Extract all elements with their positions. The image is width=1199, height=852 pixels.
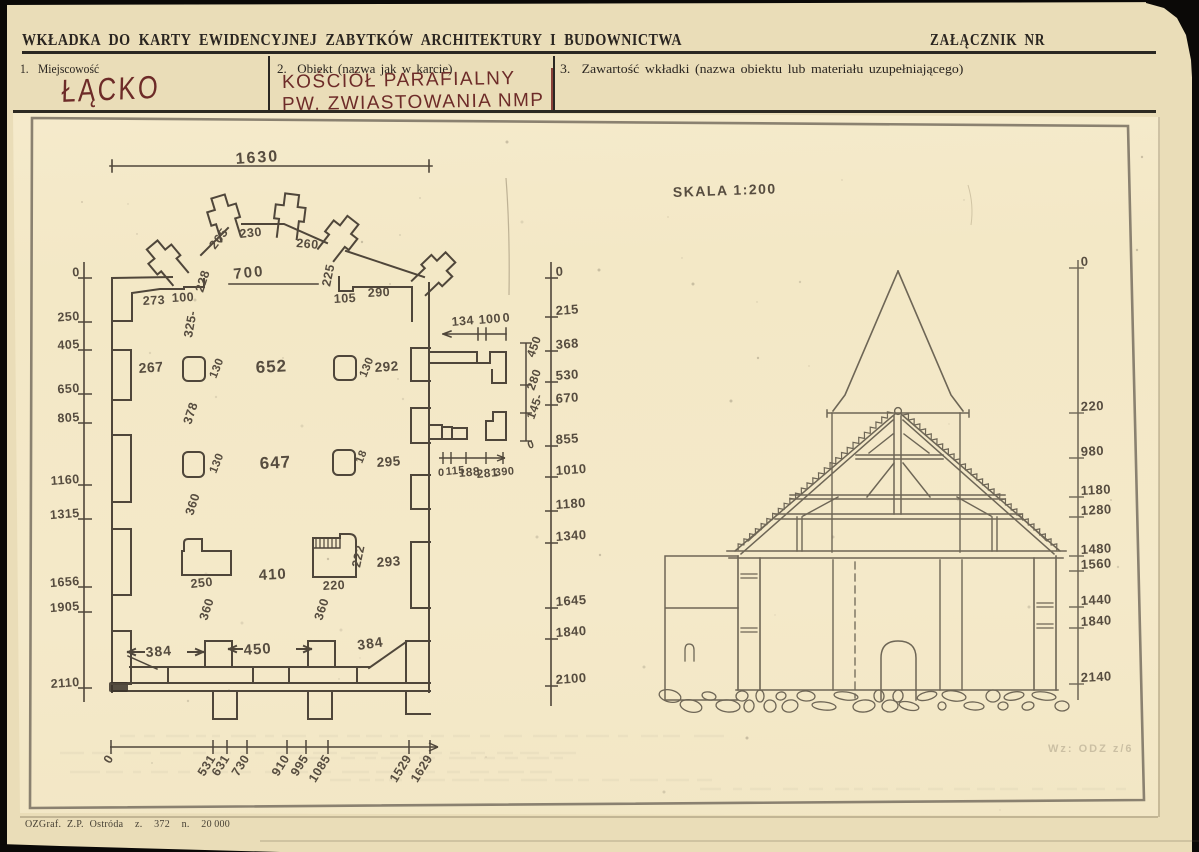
svg-text:670: 670 [555, 389, 579, 406]
svg-text:1840: 1840 [555, 623, 587, 640]
svg-text:230: 230 [239, 225, 263, 241]
svg-text:910: 910 [269, 752, 293, 778]
svg-text:0: 0 [438, 467, 445, 479]
svg-text:410: 410 [258, 566, 287, 584]
svg-text:130: 130 [208, 451, 227, 475]
svg-text:220: 220 [322, 578, 345, 593]
svg-text:130: 130 [208, 356, 227, 380]
svg-text:0: 0 [72, 265, 80, 279]
svg-text:405: 405 [57, 337, 80, 353]
svg-text:100: 100 [478, 311, 501, 327]
svg-text:100: 100 [171, 290, 194, 305]
svg-text:1840: 1840 [1080, 612, 1112, 629]
svg-text:292: 292 [374, 358, 399, 375]
svg-text:805: 805 [57, 410, 80, 426]
svg-text:228: 228 [193, 268, 213, 294]
svg-text:134: 134 [451, 313, 474, 329]
svg-text:450: 450 [243, 640, 272, 659]
svg-text:1440: 1440 [1080, 591, 1112, 608]
svg-text:215: 215 [555, 301, 579, 318]
svg-text:1315: 1315 [49, 506, 80, 522]
svg-text:378: 378 [181, 400, 201, 426]
svg-text:295: 295 [376, 453, 401, 470]
svg-text:450: 450 [524, 334, 545, 359]
svg-text:384: 384 [356, 633, 384, 653]
svg-text:360: 360 [197, 596, 217, 622]
svg-text:260: 260 [296, 236, 319, 252]
svg-text:0: 0 [502, 310, 511, 325]
svg-text:325-: 325- [181, 309, 199, 338]
svg-text:0: 0 [1080, 254, 1089, 269]
svg-text:2110: 2110 [50, 675, 80, 691]
svg-text:1480: 1480 [1080, 540, 1112, 557]
svg-text:293: 293 [376, 553, 401, 570]
svg-text:Wz: ODZ z/6: Wz: ODZ z/6 [1048, 743, 1134, 755]
svg-text:18: 18 [354, 448, 370, 465]
svg-text:273: 273 [142, 293, 165, 308]
svg-text:0: 0 [555, 263, 564, 279]
svg-text:1630: 1630 [235, 148, 280, 168]
svg-text:730: 730 [229, 752, 253, 778]
svg-text:390: 390 [494, 465, 515, 479]
svg-text:652: 652 [255, 356, 287, 377]
svg-text:105: 105 [333, 291, 356, 306]
svg-text:530: 530 [555, 366, 579, 383]
svg-text:1160: 1160 [50, 472, 80, 488]
svg-text:145-: 145- [524, 392, 546, 421]
svg-text:267: 267 [138, 358, 164, 376]
svg-text:250: 250 [190, 575, 214, 591]
svg-text:225: 225 [319, 263, 337, 288]
svg-text:368: 368 [555, 335, 579, 352]
svg-text:1340: 1340 [555, 527, 587, 544]
svg-text:360: 360 [312, 596, 332, 622]
svg-text:1180: 1180 [555, 495, 586, 512]
svg-text:290: 290 [367, 285, 390, 300]
svg-text:250: 250 [57, 309, 80, 325]
svg-text:650: 650 [57, 381, 80, 397]
svg-text:2140: 2140 [1080, 668, 1112, 685]
svg-text:700: 700 [233, 263, 266, 283]
svg-text:220: 220 [1080, 398, 1104, 414]
svg-text:1905: 1905 [49, 599, 80, 615]
svg-text:360: 360 [183, 491, 203, 517]
svg-text:1645: 1645 [555, 592, 587, 609]
svg-text:1656: 1656 [49, 574, 80, 590]
svg-text:2100: 2100 [555, 670, 587, 687]
svg-text:SKALA 1:200: SKALA 1:200 [673, 180, 777, 200]
svg-text:1010: 1010 [555, 461, 587, 478]
svg-text:855: 855 [555, 430, 579, 447]
svg-text:647: 647 [259, 452, 291, 473]
svg-text:222: 222 [349, 544, 367, 569]
svg-text:1280: 1280 [1080, 501, 1112, 518]
svg-text:384: 384 [145, 642, 172, 660]
svg-text:980: 980 [1080, 443, 1104, 459]
svg-text:1560: 1560 [1080, 555, 1112, 572]
svg-text:0: 0 [526, 438, 536, 452]
svg-text:1180: 1180 [1080, 481, 1111, 498]
